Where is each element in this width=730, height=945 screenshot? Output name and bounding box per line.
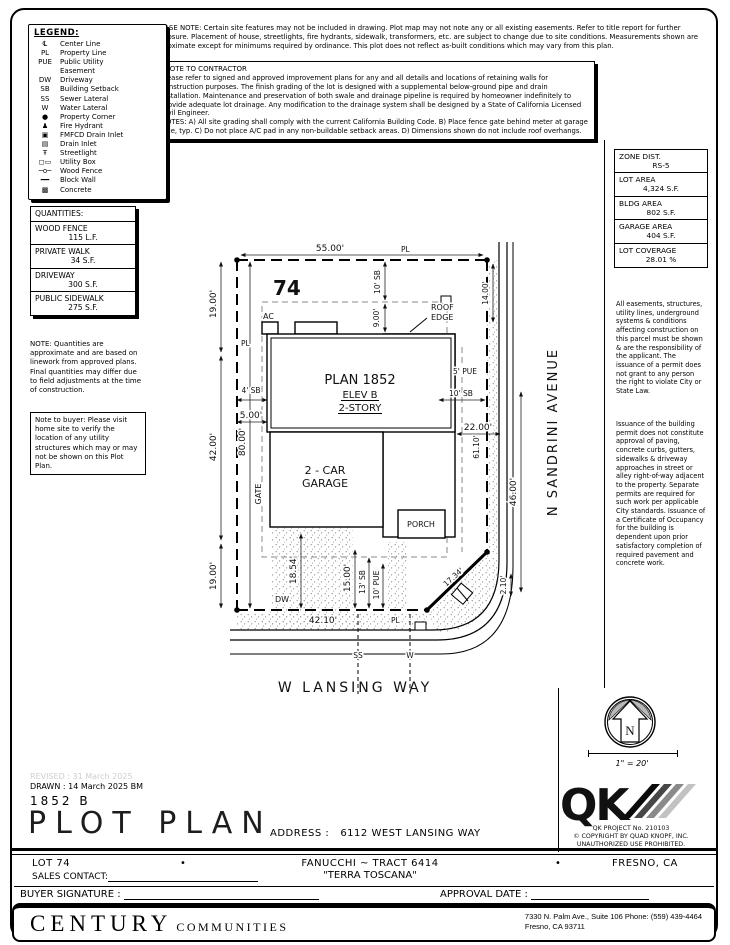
water-lateral-icon: W <box>34 104 56 113</box>
top-disclosure-note: PLEASE NOTE: Certain site features may n… <box>152 24 712 51</box>
house-footprint <box>262 322 455 538</box>
dim-5: 5.00' <box>240 411 263 421</box>
fmfcd-drain-inlet-icon: ▣ <box>34 131 56 140</box>
legend-label: Center Line <box>60 40 100 49</box>
dim-1854: 18.54' <box>289 556 299 584</box>
block-wall-icon: ━━ <box>34 176 56 185</box>
street-name-lansing: W LANSING WAY <box>278 680 432 696</box>
legend-label: Fire Hydrant <box>60 122 103 131</box>
info-bldg-area: BLDG AREA802 S.F. <box>614 196 708 221</box>
property-line-icon: PL <box>34 49 56 58</box>
dim-9: 9.00' <box>372 309 381 328</box>
address-value: 6112 WEST LANSING WAY <box>340 828 480 839</box>
scale-bar <box>588 750 678 757</box>
community-name: "TERRA TOSCANA" <box>280 870 460 881</box>
info-value: RS-5 <box>619 161 703 170</box>
builder-address-line2: Fresno, CA 93711 <box>525 922 702 932</box>
quantity-private-walk: PRIVATE WALK34 S.F. <box>30 244 136 269</box>
quantity-value: 115 L.F. <box>35 233 131 242</box>
driveway-label: DW <box>275 595 289 604</box>
quantity-value: 34 S.F. <box>35 256 131 265</box>
street-name-sandrini: N SANDRINI AVENUE <box>546 348 561 516</box>
contractor-note-title: *NOTE TO CONTRACTOR <box>161 65 589 74</box>
legend-box: LEGEND: ℄Center Line PLProperty Line PUE… <box>28 24 167 200</box>
legend-item-fire-hydrant: ♟Fire Hydrant <box>34 122 161 131</box>
legend-label: Property Line <box>60 49 106 58</box>
plan-story: 2-STORY <box>339 403 383 414</box>
drain-inlet-icon: ▤ <box>34 140 56 149</box>
legend-label: Utility Box <box>60 158 96 167</box>
qk-logo: QK <box>560 780 631 831</box>
legend-item-property-corner: ●Property Corner <box>34 113 161 122</box>
legend-item-sewer: SSSewer Lateral <box>34 95 161 104</box>
fire-hydrant-icon: ♟ <box>34 122 56 131</box>
legend-label: Concrete <box>60 186 92 195</box>
quantity-wood-fence: WOOD FENCE115 L.F. <box>30 221 136 246</box>
quantity-driveway: DRIVEWAY300 S.F. <box>30 268 136 293</box>
north-label: N <box>625 723 635 738</box>
city-label: FRESNO, CA <box>612 858 678 869</box>
permit-note: Issuance of the building permit does not… <box>616 420 706 568</box>
dim-10sb-right: 10' SB <box>449 389 473 398</box>
streetlight-icon: Ŧ <box>34 149 56 158</box>
legend-item-property-line: PLProperty Line <box>34 49 161 58</box>
legend-item-block-wall: ━━Block Wall <box>34 176 161 185</box>
tract-label: FANUCCHI ~ TRACT 6414 <box>280 858 460 869</box>
center-line-icon: ℄ <box>34 40 56 49</box>
info-label: BLDG AREA <box>619 199 703 208</box>
porch-label: PORCH <box>407 520 435 529</box>
quantity-public-sidewalk: PUBLIC SIDEWALK275 S.F. <box>30 291 136 316</box>
info-value: 802 S.F. <box>619 208 703 217</box>
legend-label: FMFCD Drain Inlet <box>60 131 123 140</box>
sewer-marker: SS <box>353 651 363 660</box>
quantity-name: PUBLIC SIDEWALK <box>35 294 131 303</box>
qk-prohibited: UNAUTHORIZED USE PROHIBITED. <box>577 841 685 848</box>
easements-note: All easements, structures, utility lines… <box>616 300 706 396</box>
qk-project-number: QK PROJECT No. 210103 <box>593 825 670 832</box>
gate-label: GATE <box>254 484 263 505</box>
legend-label: Water Lateral <box>60 104 107 113</box>
info-value: 4,324 S.F. <box>619 184 703 193</box>
info-label: GARAGE AREA <box>619 222 703 231</box>
dim-10sb-top: 10' SB <box>373 270 382 294</box>
plan-elev: ELEV B <box>342 390 377 401</box>
garage-label-1: 2 - CAR <box>305 464 346 477</box>
dim-19-top: 19.00' <box>209 290 219 318</box>
quantity-name: WOOD FENCE <box>35 224 131 233</box>
legend-item-streetlight: ŦStreetlight <box>34 149 161 158</box>
plot-plan-sheet: PLEASE NOTE: Certain site features may n… <box>0 0 730 945</box>
water-marker: W <box>406 651 414 660</box>
legend-item-fmfcd-inlet: ▣FMFCD Drain Inlet <box>34 131 161 140</box>
pl-symbol-top: PL <box>401 245 411 254</box>
address-line: ADDRESS : 6112 WEST LANSING WAY <box>270 828 481 839</box>
plan-name: PLAN 1852 <box>324 373 395 388</box>
sales-contact-line[interactable] <box>108 872 258 882</box>
buyer-signature-label: BUYER SIGNATURE : <box>20 889 121 900</box>
info-value: 404 S.F. <box>619 231 703 240</box>
north-arrow-compass: N <box>598 694 662 750</box>
sheet-title: PLOT PLAN <box>28 806 273 841</box>
bullet-separator-2: • <box>555 858 561 869</box>
qk-copyright: © COPYRIGHT BY QUAD KNOPF, INC. <box>573 832 689 840</box>
revised-date: REVISED : 31 March 2025 <box>30 772 133 781</box>
info-lot-area: LOT AREA4,324 S.F. <box>614 172 708 197</box>
scale-label: 1" = 20' <box>588 759 676 768</box>
legend-item-center-line: ℄Center Line <box>34 40 161 49</box>
dim-5pue: 5' PUE <box>453 367 477 376</box>
qk-stamp: QK QK PROJECT No. 210103 © COPYRIGHT BY … <box>556 776 706 852</box>
builder-name-2: COMMUNITIES <box>176 920 288 934</box>
info-label: ZONE DIST. <box>619 152 703 161</box>
info-value: 28.01 % <box>619 255 703 264</box>
pl-symbol-left: PL <box>241 339 251 348</box>
driveway-icon: DW <box>34 76 56 85</box>
roof-edge-label-2: EDGE <box>431 313 453 322</box>
legend-item-driveway: DWDriveway <box>34 76 161 85</box>
legend-label: Driveway <box>60 76 93 85</box>
pl-symbol-bottom: PL <box>391 616 401 625</box>
garage-label-2: GARAGE <box>302 477 348 490</box>
site-info-table: ZONE DIST.RS-5 LOT AREA4,324 S.F. BLDG A… <box>614 150 708 268</box>
builder-address: 7330 N. Palm Ave., Suite 106 Phone: (559… <box>525 912 702 932</box>
qk-stripes <box>622 784 696 818</box>
info-zone: ZONE DIST.RS-5 <box>614 149 708 174</box>
dim-19-bottom: 19.00' <box>209 562 219 590</box>
dim-4sb: 4' SB <box>241 386 260 395</box>
dim-15: 15.00' <box>343 564 353 592</box>
buyer-signature-line[interactable] <box>124 890 319 900</box>
info-lot-coverage: LOT COVERAGE28.01 % <box>614 243 708 268</box>
equipment-pad <box>295 322 337 334</box>
dim-46: 46.00' <box>509 478 519 506</box>
legend-item-utility-box: ◻▭Utility Box <box>34 158 161 167</box>
dim-42: 42.00' <box>209 433 219 461</box>
legend-label: Drain Inlet <box>60 140 97 149</box>
heavy-rule <box>10 848 716 851</box>
quantities-table: QUANTITIES: WOOD FENCE115 L.F. PRIVATE W… <box>30 206 136 316</box>
quantity-name: PRIVATE WALK <box>35 247 131 256</box>
roof-edge-label-1: ROOF <box>431 303 454 312</box>
setback-icon: SB <box>34 85 56 94</box>
legend-label: Building Setback <box>60 85 119 94</box>
legend-item-water: WWater Lateral <box>34 104 161 113</box>
sewer-lateral-icon: SS <box>34 95 56 104</box>
approval-date-label: APPROVAL DATE : <box>440 889 528 900</box>
legend-item-setback: SBBuilding Setback <box>34 85 161 94</box>
utility-box-icon: ◻▭ <box>34 158 56 167</box>
legend-label: Sewer Lateral <box>60 95 108 104</box>
quantity-value: 300 S.F. <box>35 280 131 289</box>
sales-contact-label: SALES CONTACT: <box>32 872 108 882</box>
legend-item-drain-inlet: ▤Drain Inlet <box>34 140 161 149</box>
dim-10pue: 10' PUE <box>372 570 381 599</box>
signature-divider <box>14 886 714 887</box>
quantity-name: DRIVEWAY <box>35 271 131 280</box>
info-garage-area: GARAGE AREA404 S.F. <box>614 219 708 244</box>
thin-rule <box>10 854 716 855</box>
property-corner-icon: ● <box>34 113 56 122</box>
ac-label: AC <box>263 312 274 321</box>
concrete-icon: ▩ <box>34 186 56 195</box>
dim-13sb: 13' SB <box>358 570 367 594</box>
pue-icon: PUE <box>34 58 56 76</box>
quantities-title: QUANTITIES: <box>35 209 83 218</box>
wood-fence-icon: ─o─ <box>34 167 56 176</box>
ac-pad <box>262 322 278 334</box>
drawn-date: DRAWN : 14 March 2025 BM <box>30 782 143 791</box>
approval-date-line[interactable] <box>531 890 649 900</box>
site-plan-drawing: 74 55.00' PL PL PL 19.00' 42.00' 19.00' … <box>205 242 610 704</box>
buyer-signature-row: BUYER SIGNATURE : <box>20 889 319 900</box>
approval-date-row: APPROVAL DATE : <box>440 889 649 900</box>
builder-name: CENTURY <box>30 911 172 936</box>
lot-number: 74 <box>273 276 301 300</box>
info-label: LOT AREA <box>619 175 703 184</box>
buyer-note-box: Note to buyer: Please visit home site to… <box>30 412 146 475</box>
builder-logo: CENTURYCOMMUNITIES <box>30 911 289 937</box>
utility-box-symbol-2 <box>415 622 426 630</box>
quantity-value: 275 S.F. <box>35 303 131 312</box>
dim-4210: 42.10' <box>309 616 337 626</box>
legend-label: Streetlight <box>60 149 97 158</box>
contractor-note-list: NOTES: A) All site grading shall comply … <box>161 118 589 136</box>
legend-label: Wood Fence <box>60 167 102 176</box>
builder-address-line1: 7330 N. Palm Ave., Suite 106 Phone: (559… <box>525 912 702 922</box>
quantities-note: NOTE: Quantities are approximate and are… <box>30 340 142 395</box>
legend-label: Block Wall <box>60 176 96 185</box>
legend-item-pue: PUEPublic Utility Easement <box>34 58 161 76</box>
lot-label: LOT 74 <box>32 858 70 869</box>
builder-footer: CENTURYCOMMUNITIES 7330 N. Palm Ave., Su… <box>12 903 716 942</box>
bullet-separator: • <box>180 858 186 869</box>
dim-210: 2.10' <box>499 576 508 595</box>
info-label: LOT COVERAGE <box>619 246 703 255</box>
legend-label: Public Utility Easement <box>60 58 104 76</box>
contractor-note-body: Please refer to signed and approved impr… <box>161 74 589 118</box>
dim-6110: 61.10' <box>472 435 481 459</box>
legend-item-concrete: ▩Concrete <box>34 186 161 195</box>
legend-label: Property Corner <box>60 113 115 122</box>
dim-80: 80.00' <box>238 428 248 456</box>
dim-22: 22.00' <box>464 423 492 433</box>
dim-14: 14.00' <box>481 281 490 305</box>
legend-item-wood-fence: ─o─Wood Fence <box>34 167 161 176</box>
legend-title: LEGEND: <box>34 28 161 38</box>
dim-55: 55.00' <box>316 244 344 254</box>
address-label: ADDRESS : <box>270 828 329 839</box>
sales-contact-row: SALES CONTACT: <box>32 872 258 882</box>
contractor-note-box: *NOTE TO CONTRACTOR Please refer to sign… <box>155 61 595 140</box>
